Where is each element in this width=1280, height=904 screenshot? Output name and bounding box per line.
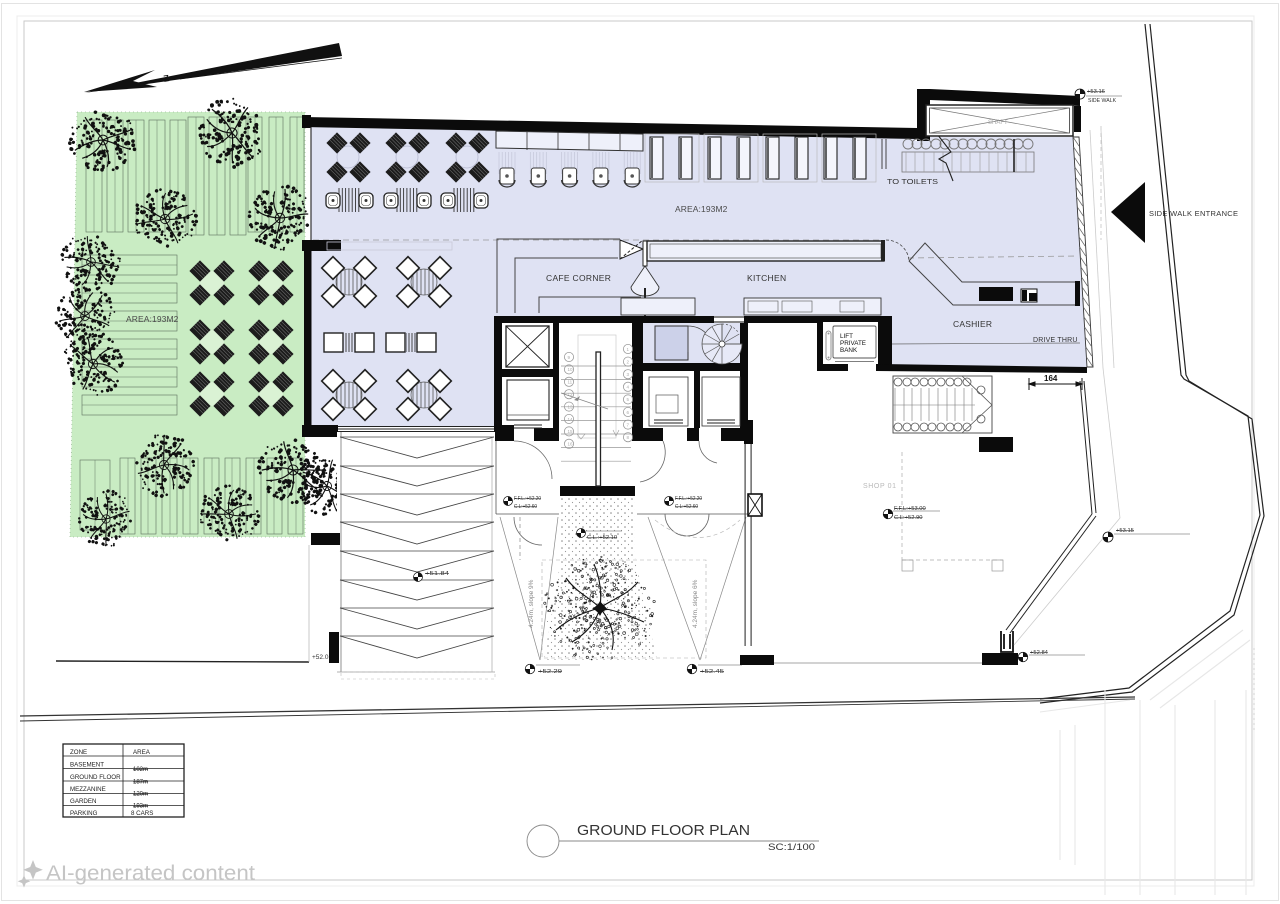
svg-text:14: 14 <box>568 417 574 422</box>
svg-text:15: 15 <box>568 429 574 434</box>
svg-text:187m: 187m <box>133 779 148 785</box>
svg-text:AI-generated content: AI-generated content <box>46 862 255 885</box>
svg-text:PARKING: PARKING <box>70 810 98 817</box>
svg-text:SC:1/100: SC:1/100 <box>768 842 815 852</box>
svg-text:BASEMENT: BASEMENT <box>70 761 104 768</box>
svg-text:102m: 102m <box>133 767 148 773</box>
svg-text:BANK: BANK <box>840 347 858 354</box>
svg-text:8 CARS: 8 CARS <box>131 810 153 817</box>
svg-text:193m: 193m <box>133 804 148 810</box>
svg-text:+52.45: +52.45 <box>700 669 724 675</box>
svg-text:KITCHEN: KITCHEN <box>747 273 786 283</box>
svg-text:SHOP 01: SHOP 01 <box>863 483 897 490</box>
svg-text:F.F.L.:+52.20: F.F.L.:+52.20 <box>514 496 541 502</box>
svg-text:SIDE WALK ENTRANCE: SIDE WALK ENTRANCE <box>1149 209 1238 218</box>
svg-text:AREA:193M2: AREA:193M2 <box>675 204 728 214</box>
svg-text:+52.0: +52.0 <box>312 654 329 661</box>
svg-text:F.F.L:+53.00: F.F.L:+53.00 <box>894 506 926 512</box>
svg-text:LIFT: LIFT <box>840 333 853 340</box>
svg-text:GROUND FLOOR: GROUND FLOOR <box>70 774 121 781</box>
svg-text:GARDEN: GARDEN <box>70 798 96 805</box>
svg-text:13: 13 <box>568 404 574 409</box>
svg-text:C.L:+52.60: C.L:+52.60 <box>514 504 537 510</box>
svg-text:SIDE WALK: SIDE WALK <box>1088 98 1117 104</box>
svg-text:C.L.:+52.10: C.L.:+52.10 <box>587 535 617 541</box>
svg-text:AREA: AREA <box>133 749 151 756</box>
svg-text:C.L:+52.90: C.L:+52.90 <box>894 515 923 521</box>
svg-text:PRIVATE: PRIVATE <box>840 340 866 347</box>
svg-text:10: 10 <box>568 367 574 372</box>
svg-text:120m: 120m <box>133 792 148 798</box>
svg-text:+52.29: +52.29 <box>538 669 562 675</box>
svg-text:+51.84: +51.84 <box>425 571 450 577</box>
svg-text:SHAFT: SHAFT <box>988 120 1008 126</box>
svg-text:C.L:+52.60: C.L:+52.60 <box>675 504 698 510</box>
svg-text:AREA:193M2: AREA:193M2 <box>126 314 179 324</box>
svg-text:+52.84: +52.84 <box>1030 650 1049 656</box>
svg-text:CAFE CORNER: CAFE CORNER <box>546 273 611 283</box>
svg-text:ZONE: ZONE <box>70 749 87 756</box>
svg-text:16: 16 <box>568 442 574 447</box>
svg-text:F.F.L.:+52.20: F.F.L.:+52.20 <box>675 496 702 502</box>
svg-text:164: 164 <box>1044 374 1058 383</box>
svg-text:4.24m, slope 6%: 4.24m, slope 6% <box>692 579 699 628</box>
svg-text:+53.16: +53.16 <box>1087 89 1105 95</box>
svg-text:MEZZANINE: MEZZANINE <box>70 786 106 793</box>
svg-text:CASHIER: CASHIER <box>953 319 992 329</box>
svg-text:4.24m, slope 9%: 4.24m, slope 9% <box>528 579 535 628</box>
svg-text:TO TOILETS: TO TOILETS <box>887 177 938 186</box>
svg-text:11: 11 <box>568 380 573 385</box>
svg-text:+53.15: +53.15 <box>1116 528 1134 534</box>
svg-text:GROUND FLOOR PLAN: GROUND FLOOR PLAN <box>577 822 750 839</box>
